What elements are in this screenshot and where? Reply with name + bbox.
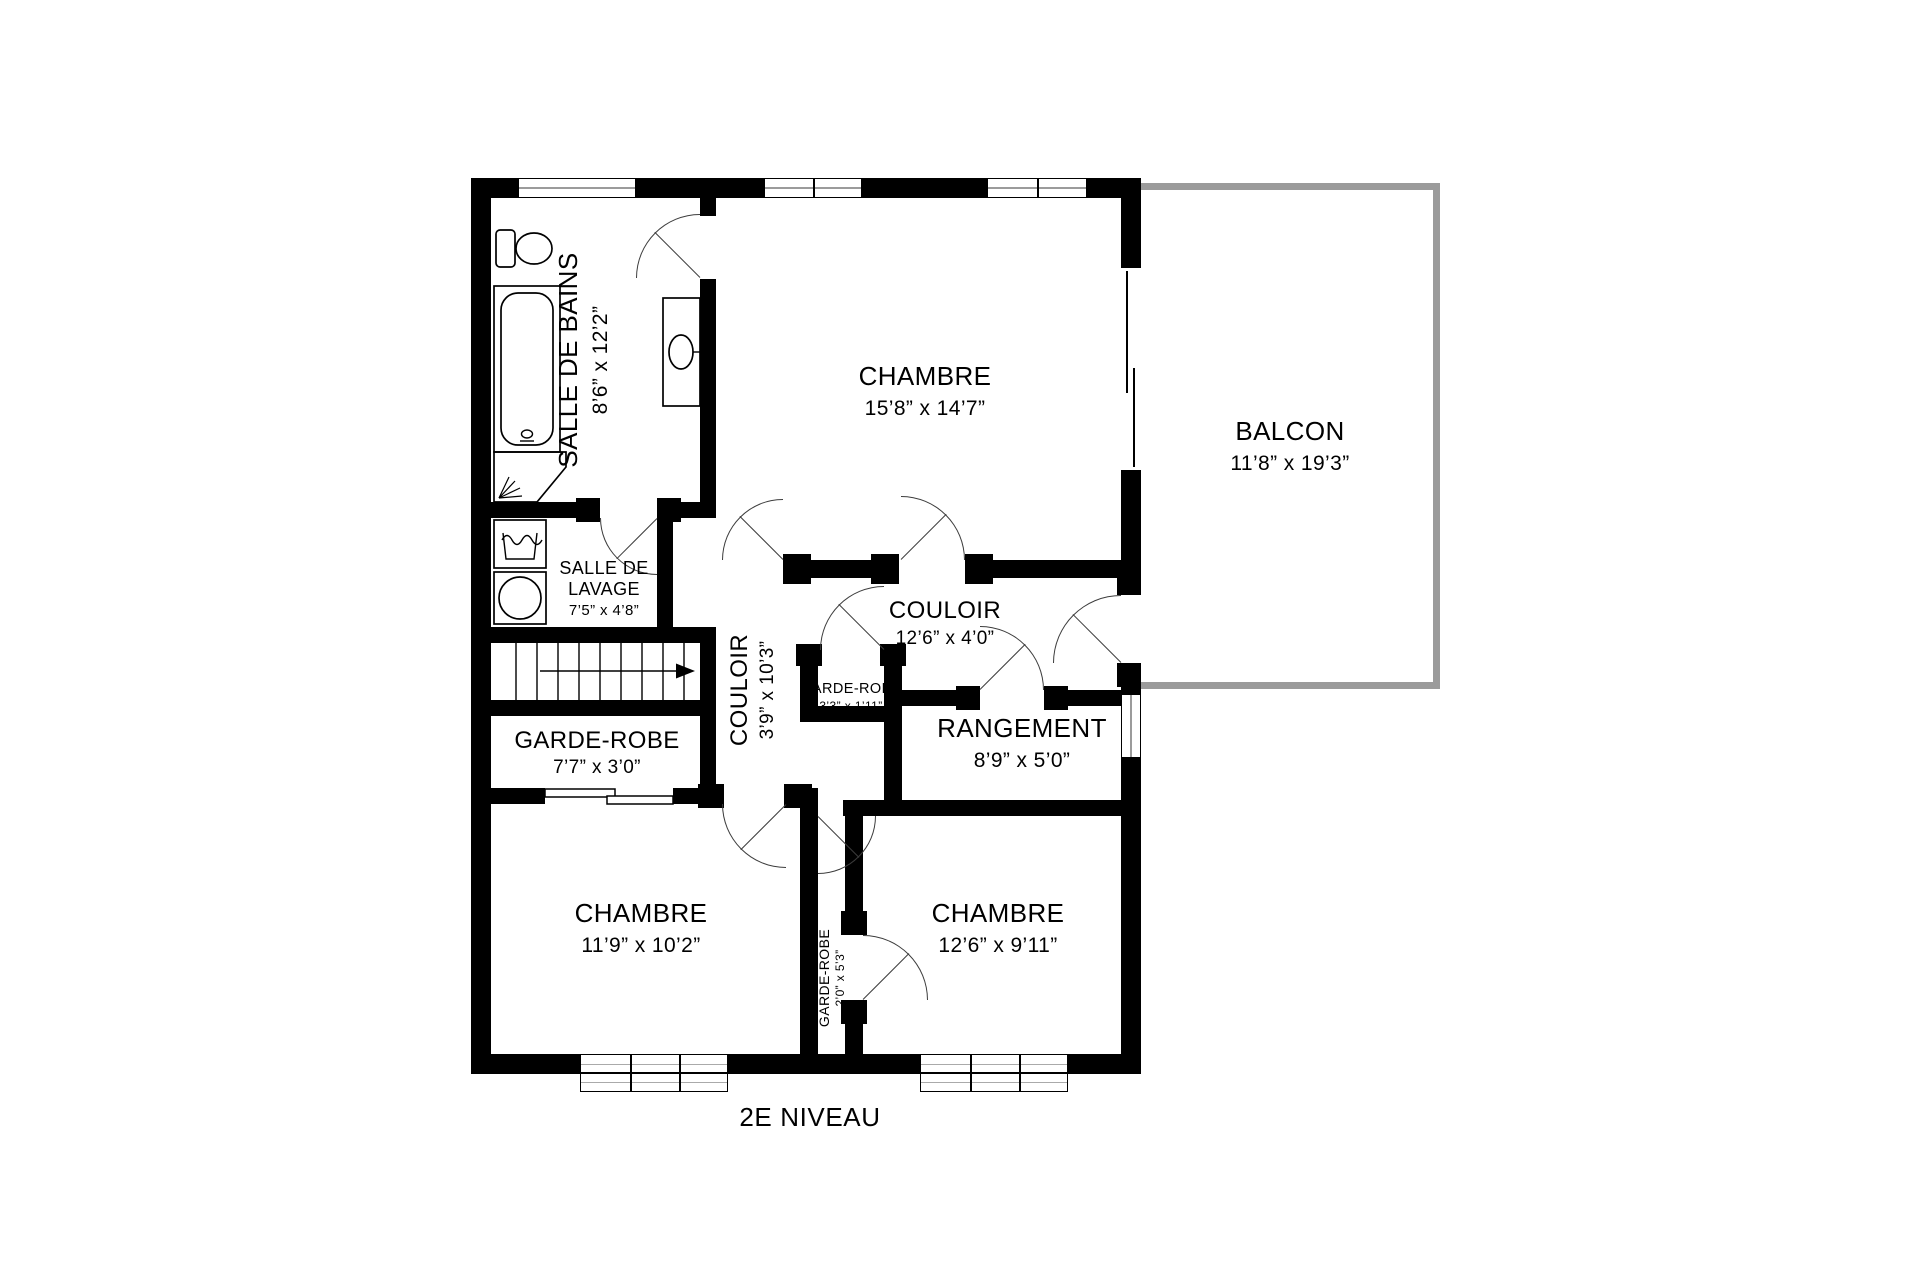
room-name-line1: SALLE DE: [559, 558, 648, 579]
room-name: GARDE-ROBE: [817, 929, 832, 1027]
plan-title: 2E NIVEAU: [610, 1102, 1010, 1133]
bathroom-sink-icon: [663, 298, 700, 406]
room-label-salle-de-lavage: SALLE DE LAVAGE 7’5” x 4’8”: [514, 550, 694, 626]
room-name: GARDE-ROBE: [514, 727, 679, 755]
room-dims: 12’6” x 9’11”: [938, 934, 1057, 958]
stairs-direction-arrow: [676, 664, 695, 679]
wall-segment: [1121, 178, 1141, 270]
room-name: GARDE-ROBE: [800, 681, 902, 697]
sliding-door-balcony: [1121, 268, 1141, 470]
room-label-balcon: BALCON 11’8” x 19’3”: [1150, 407, 1430, 485]
window-bedroom2: [580, 1054, 728, 1092]
balcony-wall-top: [1141, 183, 1440, 190]
room-label-garde-robe-2: GARDE-ROBE 2’0” x 5’3”: [812, 878, 852, 1078]
wall-segment: [784, 784, 812, 808]
window-bedroom1-right: [987, 178, 1087, 198]
wall-segment: [1117, 663, 1141, 687]
wall-segment: [576, 498, 600, 522]
room-label-rangement: RANGEMENT 8’9” x 5’0”: [882, 705, 1162, 781]
wall-segment: [1117, 571, 1141, 595]
wall-segment: [471, 788, 545, 804]
room-label-couloir-horizontal: COULOIR 12’6” x 4’0”: [805, 590, 1085, 656]
room-dims: 7’5” x 4’8”: [569, 602, 639, 619]
wall-segment: [871, 554, 899, 584]
wall-segment: [471, 178, 491, 1074]
room-dims: 11’9” x 10’2”: [581, 934, 700, 958]
wall-segment: [965, 554, 993, 584]
floor-plan: SALLE DE BAINS 8’6” x 12’2” CHAMBRE 15’8…: [0, 0, 1920, 1281]
room-dims: 12’6” x 4’0”: [896, 628, 995, 650]
room-label-chambre-2: CHAMBRE 11’9” x 10’2”: [501, 889, 781, 967]
wall-segment: [657, 498, 681, 522]
room-label-chambre-principale: CHAMBRE 15’8” x 14’7”: [785, 352, 1065, 430]
room-label-garde-robe-1: GARDE-ROBE 7’7” x 3’0”: [457, 722, 737, 784]
wall-segment: [471, 700, 716, 716]
room-dims: 3’9” x 10’3”: [757, 641, 779, 740]
wall-segment: [471, 627, 716, 643]
balcony-wall-bottom: [1141, 682, 1440, 689]
room-name: CHAMBRE: [859, 361, 992, 392]
room-dims: 11’8” x 19’3”: [1230, 452, 1349, 476]
wall-segment: [700, 279, 716, 502]
closet-strip-door: [818, 816, 876, 874]
room-dims: 8’9” x 5’0”: [974, 749, 1071, 773]
room-dims: 3’3” x 1’11”: [819, 699, 882, 713]
room-label-chambre-3: CHAMBRE 12’6” x 9’11”: [858, 889, 1138, 967]
room-name-line2: LAVAGE: [568, 579, 640, 600]
wall-segment: [783, 554, 811, 584]
window-bathroom: [518, 178, 636, 198]
room-name: CHAMBRE: [932, 898, 1065, 929]
room-name: COULOIR: [889, 597, 1001, 625]
room-label-couloir-vertical: COULOIR 3’9” x 10’3”: [717, 550, 787, 830]
room-dims: 8’6” x 12’2”: [589, 306, 613, 415]
staircase: [516, 643, 695, 700]
wall-segment: [843, 800, 1121, 816]
room-name: CHAMBRE: [575, 898, 708, 929]
balcony-wall-right: [1433, 183, 1440, 689]
bedroom1-corridor-door: [901, 496, 965, 560]
room-name: RANGEMENT: [937, 713, 1107, 744]
window-bedroom3: [920, 1054, 1068, 1092]
bathroom-door: [636, 214, 700, 278]
room-dims: 2’0” x 5’3”: [833, 949, 847, 1006]
room-dims: 15’8” x 14’7”: [865, 397, 986, 421]
bypass-closet-door: [545, 789, 673, 804]
room-name: SALLE DE BAINS: [553, 252, 584, 467]
room-label-salle-de-bains: SALLE DE BAINS 8’6” x 12’2”: [543, 220, 623, 500]
room-name: BALCON: [1235, 416, 1344, 447]
room-dims: 7’7” x 3’0”: [553, 757, 641, 779]
window-bedroom1-left: [764, 178, 862, 198]
wall-segment: [700, 198, 716, 216]
